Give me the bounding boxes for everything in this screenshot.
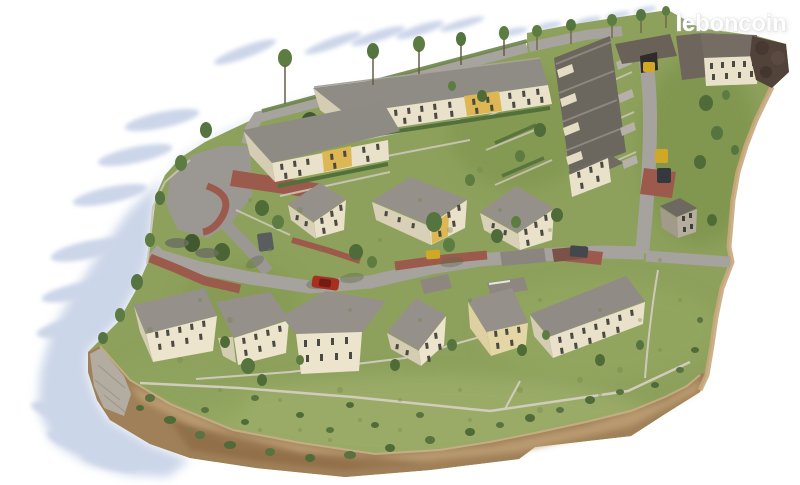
svg-text:leboncoin: leboncoin [676,10,787,37]
